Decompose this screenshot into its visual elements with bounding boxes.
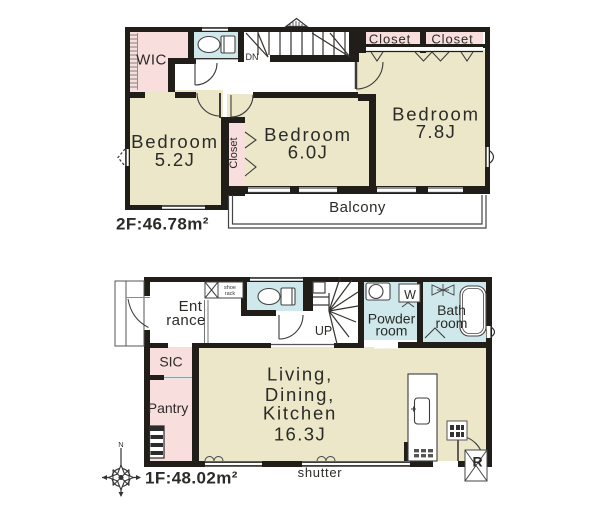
svg-text:16.3J: 16.3J — [274, 424, 326, 445]
svg-text:rack: rack — [225, 291, 236, 297]
svg-text:R: R — [472, 454, 482, 470]
svg-text:room: room — [436, 315, 468, 331]
svg-text:2F:46.78m²: 2F:46.78m² — [116, 215, 209, 234]
svg-text:Closet: Closet — [369, 32, 411, 47]
svg-text:Balcony: Balcony — [329, 199, 386, 216]
svg-text:Kitchen: Kitchen — [263, 403, 337, 424]
svg-text:SIC: SIC — [159, 354, 182, 370]
svg-text:Living,: Living, — [267, 364, 333, 385]
svg-text:DN: DN — [246, 52, 259, 62]
svg-text:Pantry: Pantry — [148, 400, 188, 416]
svg-text:WIC: WIC — [136, 52, 167, 69]
svg-text:W: W — [404, 288, 416, 302]
svg-text:N: N — [118, 440, 123, 449]
svg-text:UP: UP — [315, 324, 332, 338]
svg-text:shutter: shutter — [298, 465, 343, 480]
svg-text:1F:48.02m²: 1F:48.02m² — [145, 469, 238, 488]
svg-text:room: room — [376, 323, 408, 339]
svg-text:5.2J: 5.2J — [155, 149, 196, 170]
svg-text:Closet: Closet — [228, 137, 240, 168]
svg-text:7.8J: 7.8J — [416, 121, 457, 142]
svg-text:Closet: Closet — [431, 32, 473, 47]
svg-text:6.0J: 6.0J — [288, 142, 329, 163]
svg-text:rance: rance — [166, 312, 206, 329]
